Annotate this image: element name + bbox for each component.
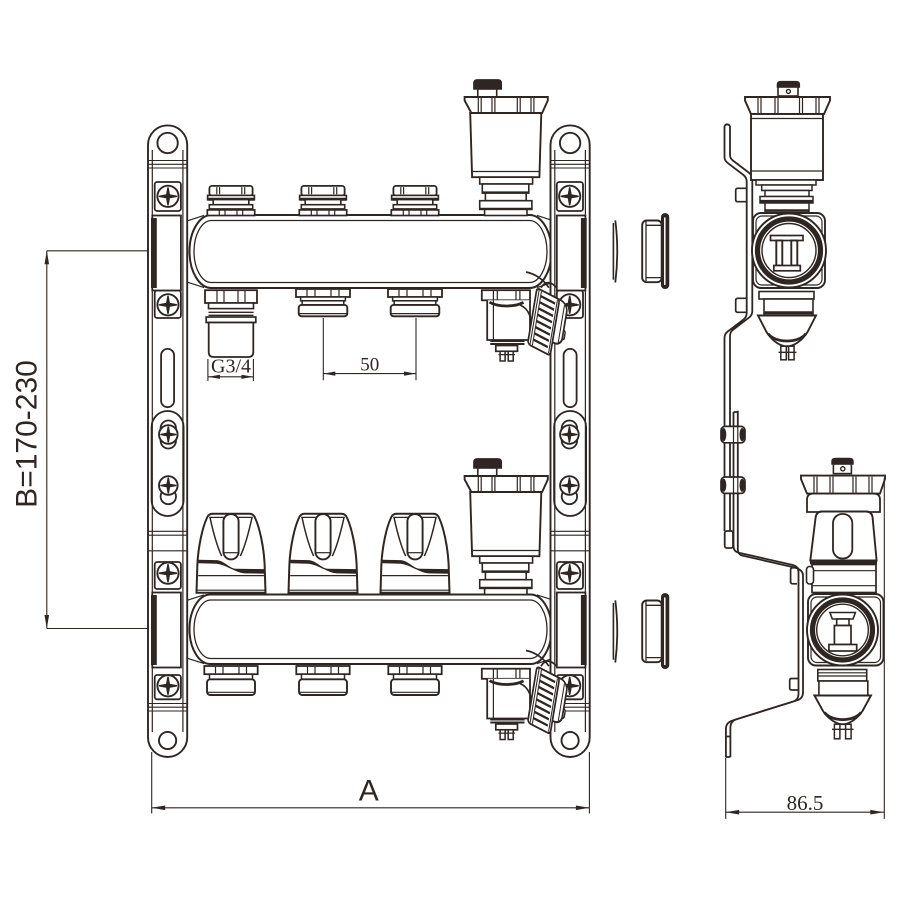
svg-text:G3/4: G3/4 — [211, 356, 251, 378]
svg-text:B=170-230: B=170-230 — [11, 360, 44, 508]
svg-text:86.5: 86.5 — [787, 791, 824, 815]
svg-text:50: 50 — [360, 355, 379, 376]
svg-text:A: A — [359, 775, 379, 808]
